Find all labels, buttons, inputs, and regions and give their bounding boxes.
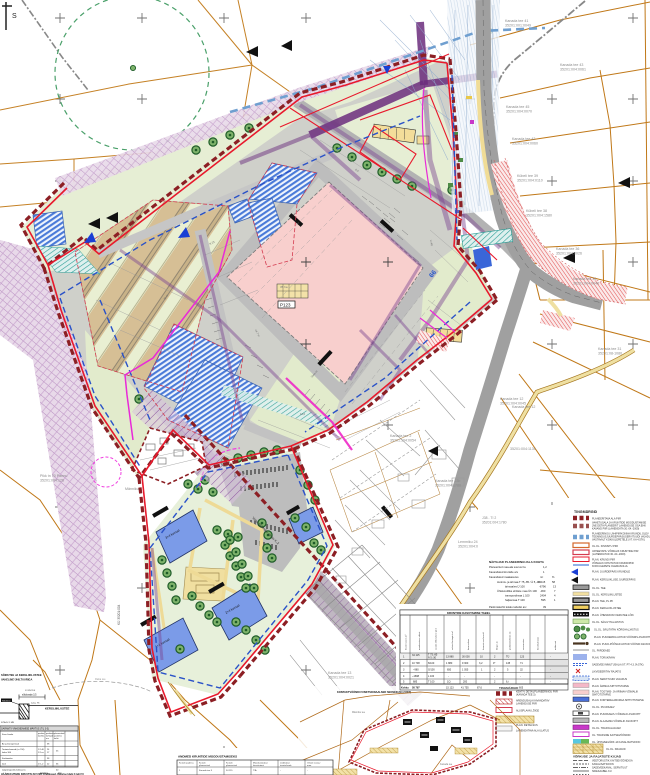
svg-text:35201:004:1780: 35201:004:1780 bbox=[435, 484, 461, 488]
svg-text:Kanada tee 12: Kanada tee 12 bbox=[512, 405, 535, 409]
svg-text:transpordimaa L 100: transpordimaa L 100 bbox=[505, 594, 530, 598]
svg-text:39: 39 bbox=[543, 605, 546, 609]
svg-text:SIHTOTSTARVE: SIHTOTSTARVE bbox=[592, 693, 611, 696]
svg-text:Kanada tee 36: Kanada tee 36 bbox=[556, 247, 579, 251]
svg-text:145: 145 bbox=[506, 662, 511, 665]
svg-text:35201:08-1080: 35201:08-1080 bbox=[598, 352, 622, 356]
svg-text:35 ha: 35 ha bbox=[280, 285, 288, 289]
svg-text:LAHENDUSE PIIR: LAHENDUSE PIIR bbox=[516, 703, 537, 706]
svg-text:Lemmiku 24: Lemmiku 24 bbox=[458, 540, 478, 544]
svg-text:2404: 2404 bbox=[540, 594, 546, 598]
svg-text:Kanada tee 42: Kanada tee 42 bbox=[512, 137, 535, 141]
svg-text:kool: kool bbox=[2, 764, 6, 766]
svg-text:Kaubandus: Kaubandus bbox=[2, 758, 13, 760]
svg-text:~1698: ~1698 bbox=[412, 675, 420, 678]
svg-text:Kanada tee 34: Kanada tee 34 bbox=[573, 277, 596, 281]
svg-text:Kavandatud maakasutus: Kavandatud maakasutus bbox=[489, 575, 519, 579]
svg-text:t=Ca. 75: t=Ca. 75 bbox=[31, 702, 40, 705]
svg-text:PLAN. ALAJAAMA VÕIMALIK ASUKOH: PLAN. ALAJAAMA VÕIMALIK ASUKOHT bbox=[592, 720, 638, 723]
svg-text:PLAN. PUUDERIDA ANTUD VÖÖNDIS: PLAN. PUUDERIDA ANTUD VÖÖNDIS ASUKOHT bbox=[594, 636, 650, 639]
svg-text:parkimiskohtade arv: parkimiskohtade arv bbox=[509, 630, 512, 650]
svg-text:suletud brutopind m²: suletud brutopind m² bbox=[451, 631, 454, 650]
svg-text:Kanada tee 13: Kanada tee 13 bbox=[328, 671, 351, 675]
svg-text:35201:004:0110: 35201:004:0110 bbox=[517, 179, 543, 183]
svg-text:Planeeritud maa-ala suurus ha: Planeeritud maa-ala suurus ha bbox=[489, 565, 526, 569]
svg-text:planeeritud: planeeritud bbox=[226, 764, 238, 767]
svg-text:605: 605 bbox=[519, 687, 524, 690]
svg-text:Kübeli tee 39: Kübeli tee 39 bbox=[517, 174, 538, 178]
svg-text:L 100: L 100 bbox=[428, 675, 435, 678]
svg-text:PLAN. PUUD-PÕÕSAD ANTUD VÖÖNDI: PLAN. PUUD-PÕÕSAD ANTUD VÖÖNDI ASUKOHT bbox=[594, 643, 650, 646]
svg-text:30 000: 30 000 bbox=[462, 656, 470, 659]
svg-text:35201:001:0049: 35201:001:0049 bbox=[505, 24, 531, 28]
svg-text:12,0: 12,0 bbox=[300, 412, 306, 416]
svg-text:KOKKULEPETE OLEMASOLUL: KOKKULEPETE OLEMASOLUL bbox=[592, 565, 629, 568]
svg-text:35201:004:0060: 35201:004:0060 bbox=[512, 142, 538, 146]
svg-text:35201:004:126: 35201:004:126 bbox=[40, 479, 64, 483]
svg-text:34 115: 34 115 bbox=[412, 654, 420, 657]
svg-text:Jalgrattaparkla kokkuarvu: Jalgrattaparkla kokkuarvu bbox=[2, 769, 27, 772]
svg-text:NÄITAJAD PLANEERINGUALA KOHTA: NÄITAJAD PLANEERINGUALA KOHTA bbox=[489, 560, 545, 564]
svg-text:Ühiskondlike ehitiste maa Üh 1: Ühiskondlike ehitiste maa Üh 100 bbox=[497, 589, 537, 593]
svg-text:ALUSPLAAN LÕIGE: ALUSPLAAN LÕIGE bbox=[516, 710, 539, 713]
svg-text:planeeritud: planeeritud bbox=[199, 764, 211, 767]
svg-text:87,6: 87,6 bbox=[477, 687, 482, 690]
svg-text:1 880: 1 880 bbox=[446, 662, 453, 665]
svg-text:OL.OL. PUURKAEV: OL.OL. PUURKAEV bbox=[592, 706, 615, 709]
svg-text:1Ci: 1Ci bbox=[447, 681, 451, 684]
svg-text:15 123: 15 123 bbox=[446, 687, 454, 690]
svg-text:T 100: T 100 bbox=[428, 681, 435, 684]
svg-text:(LAHENDATUD 30.-04.-2009): (LAHENDATUD 30.-04.-2009) bbox=[592, 553, 625, 556]
svg-text:(KANADA TEE 3): (KANADA TEE 3) bbox=[516, 694, 536, 697]
svg-text:Kanada tee 23b: Kanada tee 23b bbox=[435, 479, 460, 483]
svg-text:hoonete arv krundil: hoonete arv krundil bbox=[482, 632, 485, 650]
svg-text:Kanada tee 2: Kanada tee 2 bbox=[390, 434, 411, 438]
svg-text:Kanada tee: Kanada tee bbox=[440, 763, 453, 766]
svg-text:Äri ja büroopinnad: Äri ja büroopinnad bbox=[2, 743, 20, 746]
svg-text:PLAN. PUURKAEVU VÕIMALIK ASUKO: PLAN. PUURKAEVU VÕIMALIK ASUKOHT bbox=[592, 713, 641, 716]
svg-text:KERGLIIKLUSTEE: KERGLIIKLUSTEE bbox=[45, 707, 70, 711]
svg-text:35201:004:0021: 35201:004:0021 bbox=[328, 676, 354, 680]
svg-text:TINGMÄRGID: TINGMÄRGID bbox=[574, 510, 598, 514]
svg-text:PLAN. SERVITUUDI VAJADUS: PLAN. SERVITUUDI VAJADUS bbox=[592, 678, 627, 681]
svg-text:35201:004:1130: 35201:004:1130 bbox=[510, 447, 536, 451]
svg-text:Kavandatud kruntide arv: Kavandatud kruntide arv bbox=[489, 570, 519, 574]
svg-text:kohti: kohti bbox=[54, 737, 59, 740]
svg-text:Kasu liimala: Kasu liimala bbox=[2, 734, 14, 736]
svg-text:4*: 4* bbox=[493, 662, 495, 665]
svg-text:1/ 1-2: 1/ 1-2 bbox=[38, 764, 44, 766]
svg-text:35201:004:0048: 35201:004:0048 bbox=[573, 282, 599, 286]
svg-text:veevarustus: veevarustus bbox=[522, 639, 525, 650]
svg-text:6/100: 6/100 bbox=[428, 662, 435, 665]
svg-text:OL.OL. KINNISTU PIIR: OL.OL. KINNISTU PIIR bbox=[592, 545, 618, 548]
svg-text:korruselisus: korruselisus bbox=[467, 639, 470, 650]
svg-text:KÜ 35201:004: KÜ 35201:004 bbox=[117, 604, 121, 625]
svg-text:-360: -360 bbox=[540, 589, 546, 593]
svg-text:35201:004:1580: 35201:004:1580 bbox=[526, 214, 552, 218]
svg-text:koefits.: koefits. bbox=[38, 735, 45, 738]
svg-text:maakasutuse sihtot.: maakasutuse sihtot. bbox=[418, 631, 421, 650]
svg-text:KAVAND PIIR (LAHENDATA 30.-04.: KAVAND PIIR (LAHENDATA 30.-04.-2009) bbox=[592, 528, 639, 531]
svg-text:Kanada tee 41: Kanada tee 41 bbox=[505, 19, 528, 23]
svg-text:Ü/100: Ü/100 bbox=[428, 669, 435, 672]
svg-text:PLAN. JUURDEPÄÄS KRUNDILE: PLAN. JUURDEPÄÄS KRUNDILE bbox=[592, 571, 630, 574]
svg-text:Männiku: Männiku bbox=[125, 487, 139, 491]
svg-text:PLAN. DETAILSUS: PLAN. DETAILSUS bbox=[516, 724, 538, 727]
svg-text:tasuta/saab: tasuta/saab bbox=[280, 764, 292, 767]
svg-text:OL.OL. SÄILIV HALJASTUS: OL.OL. SÄILIV HALJASTUS bbox=[592, 621, 624, 624]
svg-text:KÕNNITEE: KÕNNITEE bbox=[25, 689, 36, 692]
svg-text:PLAN. KERGLIIKLUSTEE: PLAN. KERGLIIKLUSTEE bbox=[592, 607, 622, 610]
svg-text:m²: m² bbox=[540, 576, 543, 579]
svg-text:ANDMED KRUNTIDE MOODUSTAMISE: ANDMED KRUNTIDE MOODUSTAMISEKS bbox=[178, 755, 237, 759]
svg-text:OL.OL. KRAAVID: OL.OL. KRAAVID bbox=[606, 748, 626, 751]
svg-text:Kokku: Kokku bbox=[401, 687, 409, 690]
svg-text:kõrgus m: kõrgus m bbox=[496, 641, 499, 650]
svg-text:34115: 34115 bbox=[538, 580, 546, 584]
svg-text:1/ 140: 1/ 140 bbox=[38, 749, 45, 751]
svg-text:PLAN. ÄRIMAA SIHTOTSTARVE: PLAN. ÄRIMAA SIHTOTSTARVE bbox=[592, 685, 629, 688]
svg-text:OL.OL. TEE: OL.OL. TEE bbox=[592, 587, 606, 590]
svg-text:PLANEERITAVA ALA PIIR: PLANEERITAVA ALA PIIR bbox=[592, 518, 621, 521]
svg-text:Pikk tn 70 Parmu: Pikk tn 70 Parmu bbox=[40, 474, 67, 478]
svg-text:Raba tee: Raba tee bbox=[95, 677, 106, 681]
svg-text:OL. ÜHISVEEVÄRK JA KANALISATSI: OL. ÜHISVEEVÄRK JA KANALISATSIOON bbox=[592, 741, 640, 744]
svg-text:35201:004:1780: 35201:004:1780 bbox=[482, 521, 507, 525]
svg-text:PLAN. ÜHENDATAV KERGTEE LÕIK: PLAN. ÜHENDATAV KERGTEE LÕIK bbox=[592, 614, 634, 617]
svg-text:Kanada tee 3: Kanada tee 3 bbox=[199, 769, 213, 772]
svg-text:35201:004:0026: 35201:004:0026 bbox=[556, 252, 582, 256]
svg-text:34 115: 34 115 bbox=[226, 770, 233, 772]
svg-text:Kanada tee 45: Kanada tee 45 bbox=[506, 105, 529, 109]
svg-text:haljasmaa T 100: haljasmaa T 100 bbox=[505, 598, 525, 602]
svg-text:Ä 5,-30: Ä 5,-30 bbox=[428, 657, 437, 660]
svg-text:Sõidutee: Sõidutee bbox=[2, 699, 11, 702]
svg-text:35201:004:0070: 35201:004:0070 bbox=[506, 110, 532, 114]
svg-text:ärimaa/es.Ü 100: ärimaa/es.Ü 100 bbox=[505, 585, 525, 589]
svg-text:13 880: 13 880 bbox=[446, 656, 454, 659]
svg-text:GARANTII VÄHENDAMISE MÄÄTUS (T: GARANTII VÄHENDAMISE MÄÄTUS (T/L 3-5) bbox=[1, 728, 49, 731]
svg-text:KRUNTIDE KASUTAMISE TABEL: KRUNTIDE KASUTAMISE TABEL bbox=[447, 611, 491, 615]
svg-text:PLAN. KORTERELAMUMAA SIHTOTSTA: PLAN. KORTERELAMUMAA SIHTOTSTARVE bbox=[592, 699, 644, 702]
svg-text:tootmis- ja ärimaa T 75,-85 /: tootmis- ja ärimaa T 75,-85 / Ä 5,-30 bbox=[497, 580, 540, 584]
svg-text:13: 13 bbox=[553, 585, 556, 589]
svg-text:Kanada tee 12: Kanada tee 12 bbox=[500, 397, 523, 401]
svg-text:35201:104:0054: 35201:104:0054 bbox=[390, 439, 416, 443]
svg-text:sõidurada 3,5: sõidurada 3,5 bbox=[22, 694, 37, 697]
svg-text:OL.OL. KERGLIIKLUSTEE: OL.OL. KERGLIIKLUSTEE bbox=[592, 593, 622, 596]
svg-text:LIKVIDEERITAV RAJATIS: LIKVIDEERITAV RAJATIS bbox=[592, 671, 621, 674]
svg-text:35201:004:0061: 35201:004:0061 bbox=[560, 68, 586, 72]
svg-text:41 755: 41 755 bbox=[461, 687, 469, 690]
svg-text:3,2: 3,2 bbox=[479, 662, 483, 665]
svg-text:SADEVEE IMMUTUSALA (VT. PT 4.3: SADEVEE IMMUTUSALA (VT. PT 4.3 JA 5TK) bbox=[592, 664, 644, 667]
svg-text:595: 595 bbox=[541, 598, 546, 602]
svg-text:1 055: 1 055 bbox=[462, 669, 469, 672]
svg-text:Männiku tee: Männiku tee bbox=[352, 711, 366, 714]
svg-text:PLAN. TEE, PL.PK: PLAN. TEE, PL.PK bbox=[592, 600, 614, 603]
svg-text:OL. PIIRDEAED: OL. PIIRDEAED bbox=[592, 650, 610, 653]
svg-text:kanalisatsioon: kanalisatsioon bbox=[537, 636, 540, 650]
svg-text:Krundi aadress: Krundi aadress bbox=[179, 762, 195, 765]
svg-text:kinnistutest: kinnistutest bbox=[253, 764, 264, 767]
svg-text:OL.OL. SÄILITATAV KÕRGHALJASTU: OL.OL. SÄILITATAV KÕRGHALJASTUS bbox=[594, 629, 639, 632]
svg-text:ladus 300: ladus 300 bbox=[2, 752, 12, 754]
svg-text:OL. TRASSIDE KAITSEVÖÖNDID: OL. TRASSIDE KAITSEVÖÖNDID bbox=[592, 734, 631, 737]
svg-text:krundi suurus m²: krundi suurus m² bbox=[405, 634, 408, 650]
svg-text:58 797: 58 797 bbox=[412, 687, 420, 690]
svg-text:Kanada tee 31: Kanada tee 31 bbox=[598, 347, 621, 351]
svg-text:58: 58 bbox=[552, 580, 555, 584]
svg-text:123: 123 bbox=[520, 656, 525, 659]
svg-text:685: 685 bbox=[413, 681, 418, 684]
svg-text:SIDEKAABEL KU: SIDEKAABEL KU bbox=[592, 770, 612, 773]
svg-text:OL.OL. TRAFOALAJAAM: OL.OL. TRAFOALAJAAM bbox=[592, 727, 621, 730]
svg-text:KÕAJU 1 MB: KÕAJU 1 MB bbox=[1, 721, 15, 724]
svg-text:PLAN. KERGLIIKLUSE JUURDEPÄÄS: PLAN. KERGLIIKLUSE JUURDEPÄÄS bbox=[592, 579, 636, 582]
svg-text:TÜ: TÜ bbox=[506, 656, 510, 659]
svg-text:Kanada tee 43: Kanada tee 43 bbox=[560, 63, 583, 67]
svg-text:1,2: 1,2 bbox=[543, 565, 547, 569]
svg-text:9 300: 9 300 bbox=[462, 662, 469, 665]
svg-text:PLAN. TORUKRAAV: PLAN. TORUKRAAV bbox=[592, 657, 616, 660]
svg-text:10 708: 10 708 bbox=[412, 662, 420, 665]
svg-text:suurim ehitusalune pind: suurim ehitusalune pind bbox=[435, 627, 438, 650]
svg-text:T/Ä: T/Ä bbox=[253, 769, 257, 772]
svg-text:-6796: -6796 bbox=[539, 585, 546, 589]
svg-text:200: 200 bbox=[463, 681, 468, 684]
svg-text:650: 650 bbox=[447, 669, 452, 672]
svg-text:VASTAVALT KOKKULEPETELE (VT. K: VASTAVALT KOKKULEPETELE (VT. KA 4.5TK) bbox=[592, 539, 645, 542]
svg-text:J38 - TI 2: J38 - TI 2 bbox=[482, 516, 496, 520]
svg-text:P123: P123 bbox=[280, 303, 291, 308]
svg-text:VÕRKUDE JA RAJATISTE KUJAD: VÕRKUDE JA RAJATISTE KUJAD bbox=[573, 754, 622, 759]
svg-text:Kübeli tee 38: Kübeli tee 38 bbox=[526, 209, 547, 213]
svg-text:S: S bbox=[12, 13, 17, 20]
svg-text:Parkimiskohti kokku tabelist a: Parkimiskohti kokku tabelist arv bbox=[489, 605, 527, 609]
svg-text:1/ 1co: 1/ 1co bbox=[38, 752, 45, 754]
svg-text:~980: ~980 bbox=[413, 669, 419, 672]
svg-text:märkused: märkused bbox=[554, 640, 557, 650]
svg-text:Tootmishooned (ca 700): Tootmishooned (ca 700) bbox=[2, 748, 25, 751]
svg-text:TINGMÄRGID: TINGMÄRGID bbox=[499, 686, 519, 690]
svg-text:6,i: 6,i bbox=[506, 681, 509, 684]
svg-text:LAHENDATAVA ALA ULATUS: LAHENDATAVA ALA ULATUS bbox=[516, 730, 549, 733]
